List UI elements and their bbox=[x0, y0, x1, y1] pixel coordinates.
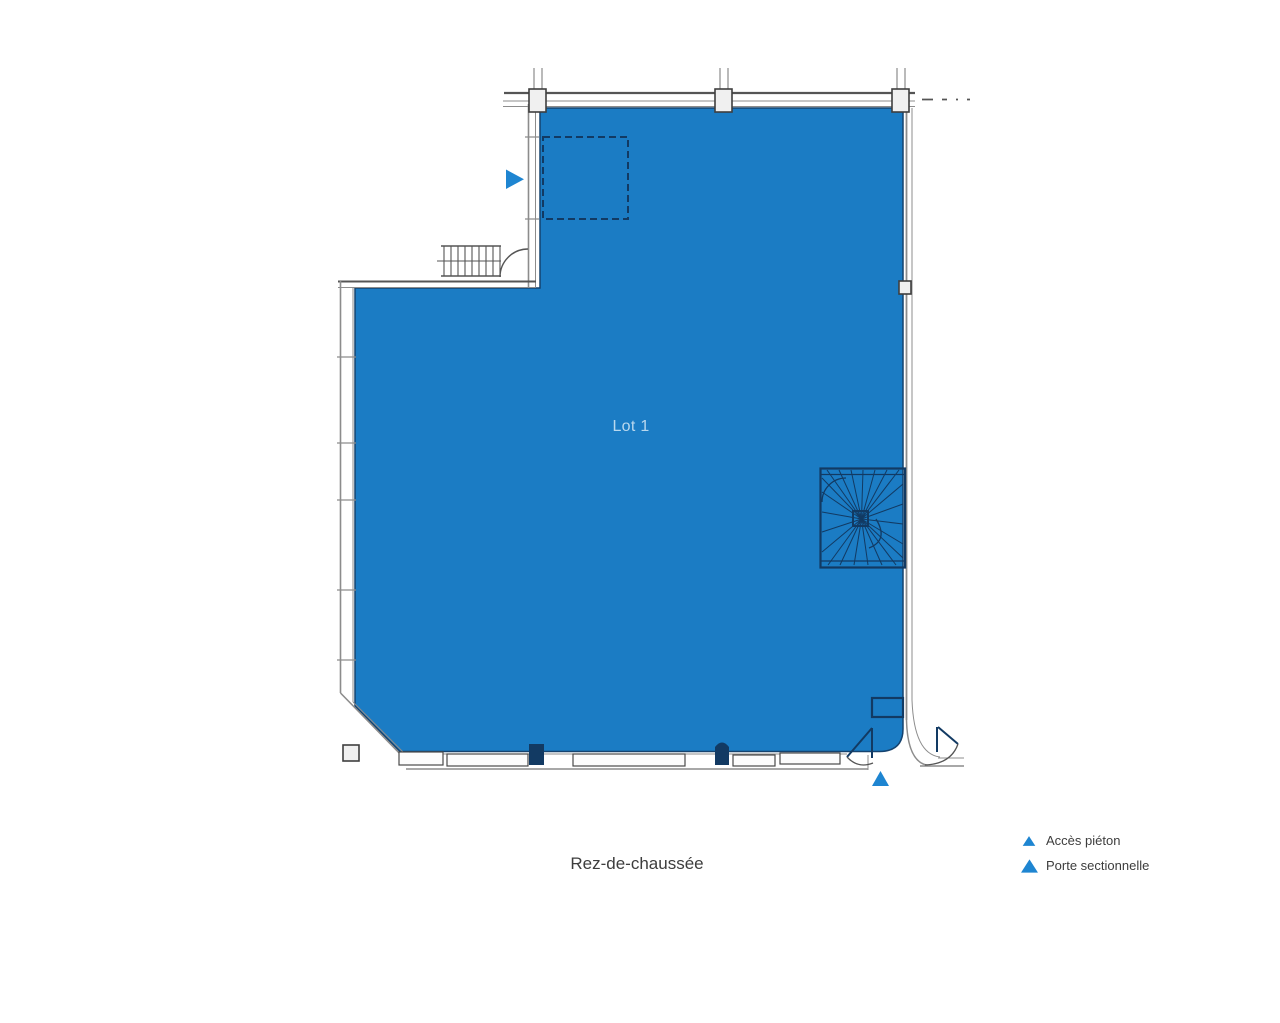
right-wall-column bbox=[899, 281, 911, 294]
lot-label: Lot 1 bbox=[586, 418, 676, 436]
porte-sectionnelle-triangle-icon bbox=[1012, 858, 1046, 874]
straight-stairs bbox=[437, 246, 528, 277]
door-swing-arc bbox=[500, 249, 528, 277]
floor-plan-page: Lot 1 Rez-de-chaussée Accès piéton Porte… bbox=[0, 0, 1280, 1023]
legend-item-acces-pieton: Accès piéton bbox=[1012, 831, 1149, 850]
floor-caption: Rez-de-chaussée bbox=[497, 854, 777, 874]
wall-pillar bbox=[715, 743, 729, 766]
legend: Accès piéton Porte sectionnelle bbox=[1012, 831, 1149, 875]
legend-label-acces-pieton: Accès piéton bbox=[1046, 833, 1120, 848]
legend-item-porte-sectionnelle: Porte sectionnelle bbox=[1012, 856, 1149, 875]
porte-sectionnelle-marker bbox=[872, 771, 889, 786]
legend-label-porte-sectionnelle: Porte sectionnelle bbox=[1046, 858, 1149, 873]
acces-pieton-triangle-icon bbox=[1012, 835, 1046, 847]
acces-pieton-marker bbox=[506, 170, 524, 190]
wall-pillar bbox=[529, 744, 544, 765]
corner-column bbox=[343, 745, 359, 761]
